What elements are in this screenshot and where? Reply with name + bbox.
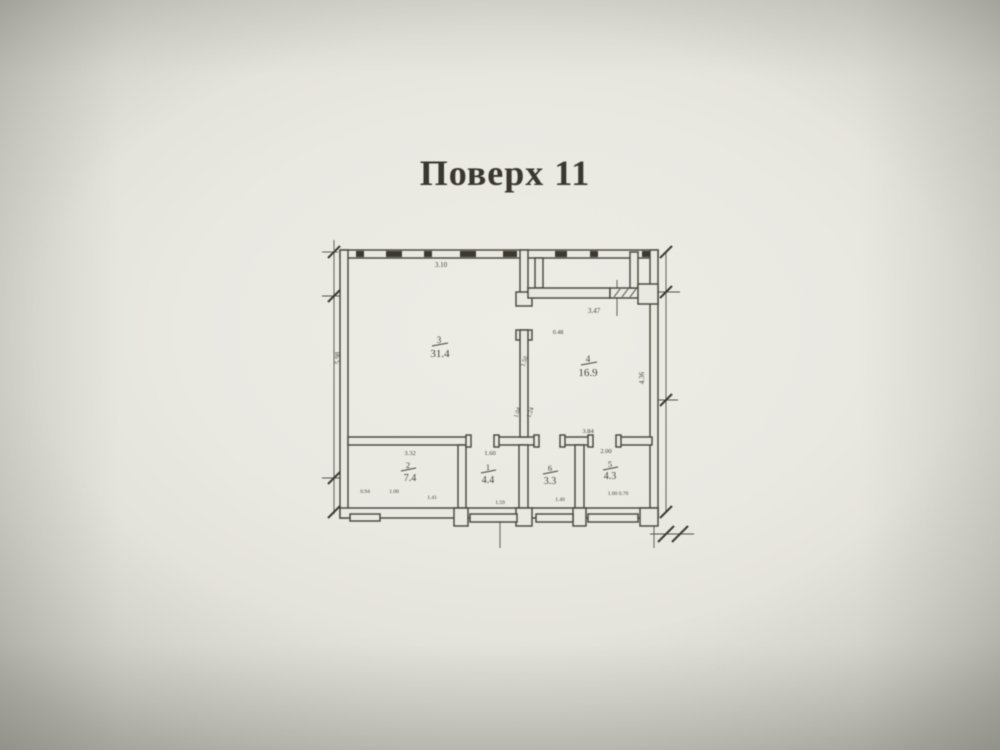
wall-mid-horizontal-d [618,437,652,445]
walls [340,250,658,526]
door-jamb-1a [466,435,471,447]
floor-plan: 3 31.4 4 16.9 2 7.4 1 4.4 6 3.3 5 4.3 3.… [320,236,700,566]
room-6-number: 6 [548,463,552,473]
wall-middle-top [520,250,528,294]
room-4-number: 4 [586,354,591,364]
room-2-number: 2 [406,460,410,470]
dim-room2-top: 3.32 [404,450,415,457]
dim-left: 5.98 [334,351,342,364]
dim-room1-top: 1.60 [484,450,495,457]
dim-bottom-6: 1.00 0.70 [608,491,629,497]
wall-column-right [638,284,658,304]
room-1-number: 1 [486,462,490,472]
threshold-room1 [470,514,517,522]
balcony-wall-left [535,258,543,288]
dim-right: 4.36 [638,371,646,384]
dim-top: 3.10 [435,261,448,269]
wall-divider-room6-room5 [575,445,584,508]
dim-bottom-3: 1.41 [427,495,437,501]
dim-bottom-2: 1.00 [389,489,399,495]
balcony-wall-stub [630,252,638,288]
room-6-area: 3.3 [544,476,557,487]
corner-block [640,508,658,526]
dim-bottom-1: 0.94 [360,489,370,495]
door-jamb-5a [588,435,593,447]
wall-foot-c [573,508,586,526]
room-5-number: 5 [608,459,612,469]
balcony-wall-bottom [528,288,610,298]
room-2-area: 7.4 [404,473,417,484]
room-4-area: 16.9 [578,367,598,379]
dim-balcony: 3.47 [588,307,601,315]
door-jamb-1b [494,435,499,447]
wall-mid-horizontal-a [348,437,468,445]
wall-left [340,250,348,518]
wall-mid-horizontal-c [562,437,590,445]
threshold-room5 [588,514,638,522]
door-jamb-5b [616,435,621,447]
room-3-number: 3 [437,335,442,345]
dim-bottom-5: 1.40 [555,497,565,503]
wall-foot-b [516,508,532,526]
room-3-area: 31.4 [430,348,450,360]
wall-middle-lower [520,330,528,437]
wall-foot-a [454,508,468,526]
wall-mid-horizontal-b [496,437,536,445]
dim-hall: 3.84 [582,428,594,435]
dim-bottom-4: 1.59 [495,500,505,506]
page-title: Поверх 11 [420,152,591,194]
room-5-area: 4.3 [604,471,617,482]
scanned-floor-plan-page: Поверх 11 [0,0,1000,750]
room-1-area: 4.4 [482,475,495,486]
radiator-niche [350,514,380,521]
wall-divider-room1-room6 [519,445,528,508]
dim-door: 0.48 [553,330,564,336]
door-jamb-6a [534,435,539,447]
threshold-room6 [536,514,573,522]
wall-divider-room2-room1 [458,445,466,508]
dim-room5-top: 2.00 [600,448,611,455]
door-jamb-6b [560,435,565,447]
